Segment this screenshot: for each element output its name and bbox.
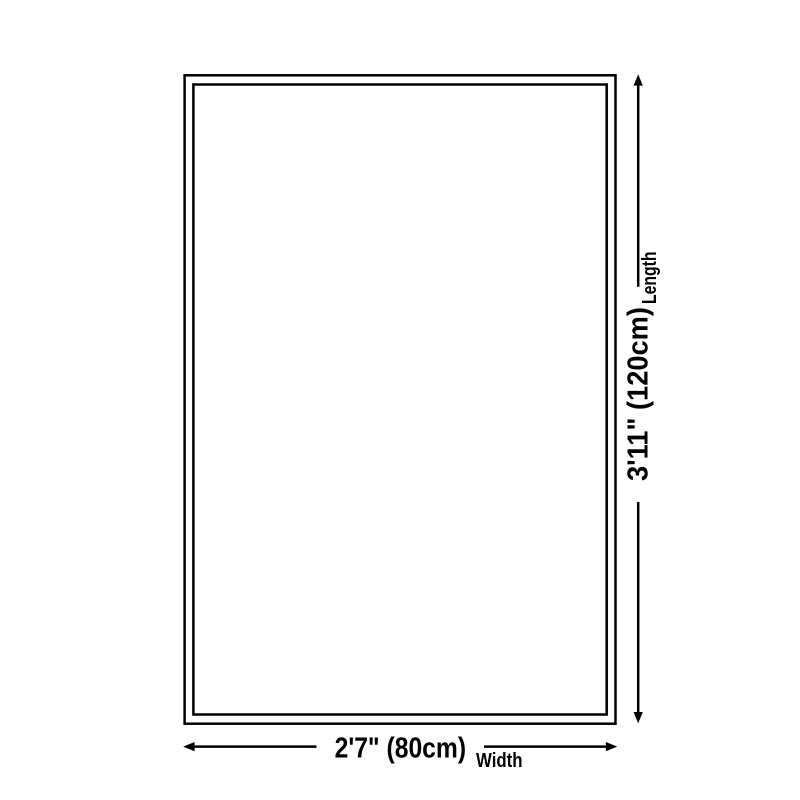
svg-text:3'11" (120cm): 3'11" (120cm) <box>622 307 654 481</box>
svg-text:2'7" (80cm): 2'7" (80cm) <box>335 733 467 765</box>
svg-text:Length: Length <box>639 252 661 305</box>
svg-text:Width: Width <box>476 750 523 772</box>
